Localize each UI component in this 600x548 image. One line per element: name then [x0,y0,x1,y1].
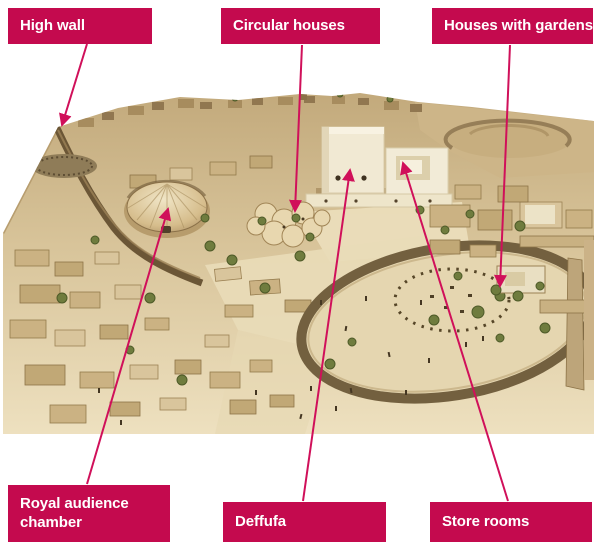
label-circular-houses: Circular houses [221,8,380,44]
label-high-wall: High wall [8,8,152,44]
label-deffufa: Deffufa [223,502,386,542]
label-high-wall-text: High wall [20,17,85,36]
label-store-rooms: Store rooms [430,502,592,542]
label-deffufa-text: Deffufa [235,513,286,532]
label-store-rooms-text: Store rooms [442,513,529,532]
label-royal-audience-chamber-text: Royal audience chamber [20,495,158,533]
royal-audience-chamber-structure [124,181,210,238]
diagram-canvas: High wall Circular houses Houses with ga… [0,0,600,548]
label-houses-with-gardens: Houses with gardens [432,8,593,44]
label-royal-audience-chamber: Royal audience chamber [8,485,170,542]
label-houses-with-gardens-text: Houses with gardens [444,17,593,36]
label-circular-houses-text: Circular houses [233,17,345,36]
deffufa-tower [316,127,392,196]
city-model-photo [0,90,600,438]
